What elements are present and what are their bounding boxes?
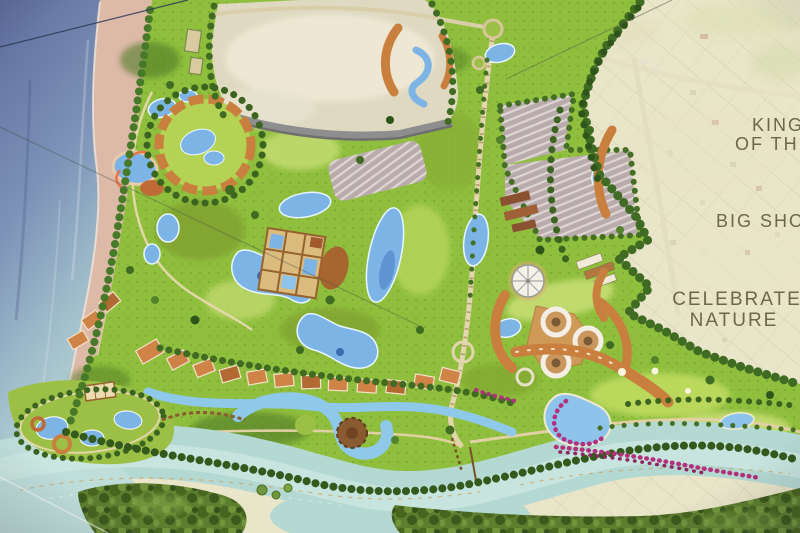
map-canvas: KINGD OF THE BIG SHOW CELEBRATE NATURE (0, 0, 800, 533)
photo-vignette (0, 0, 800, 533)
masterplan-map-photo: KINGD OF THE BIG SHOW CELEBRATE NATURE (0, 0, 800, 533)
